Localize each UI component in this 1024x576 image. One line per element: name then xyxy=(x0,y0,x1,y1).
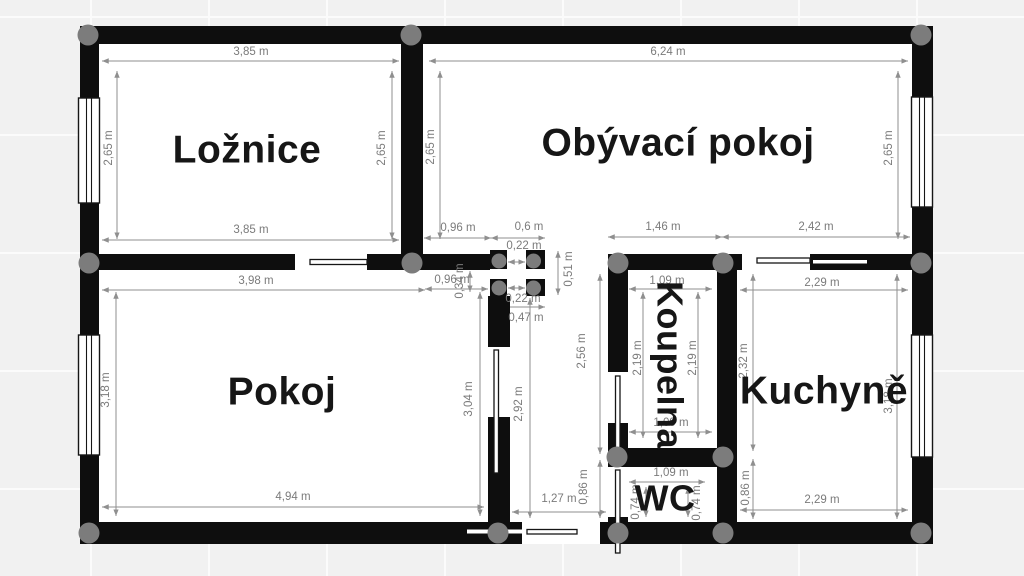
dim-obyvaci-right: 2,65 m xyxy=(883,130,895,165)
dim-hall-292: 2,92 m xyxy=(513,386,525,421)
dim-col-047: 0,47 m xyxy=(508,312,543,324)
dim-hall-256: 2,56 m xyxy=(576,333,588,368)
floor-plan-canvas: 3,85 m 6,24 m 2,65 m 2,65 m 2,65 m 2,65 … xyxy=(0,0,1024,576)
door-leaf-entrance xyxy=(527,530,577,535)
wall-bottom-left xyxy=(80,522,522,544)
room-label-kuchyne: Kuchyně xyxy=(740,370,908,413)
window-loznice xyxy=(79,98,100,203)
room-label-loznice: Ložnice xyxy=(173,129,322,172)
room-label-pokoj: Pokoj xyxy=(228,371,337,414)
dim-kuchyne-bottom: 2,29 m xyxy=(804,494,839,506)
window-kuchyne xyxy=(912,335,933,457)
dim-koupelna-left: 2,19 m xyxy=(632,340,644,375)
wall-kuchyne-left xyxy=(717,254,737,522)
window-pokoj xyxy=(79,335,100,455)
wall-top xyxy=(80,26,932,44)
room-label-koupelna: Koupelna xyxy=(650,281,691,449)
dim-loznice-right: 2,65 m xyxy=(376,130,388,165)
door-leaf-loznice xyxy=(310,260,367,265)
dim-pokoj-right: 3,04 m xyxy=(463,381,475,416)
window-obyvaci xyxy=(912,97,933,207)
dim-mid-242: 2,42 m xyxy=(798,221,833,233)
floor-plan-page: 3,85 m 6,24 m 2,65 m 2,65 m 2,65 m 2,65 … xyxy=(0,0,1024,576)
dim-obyvaci-left: 2,65 m xyxy=(425,129,437,164)
dim-mid-096: 0,96 m xyxy=(440,222,475,234)
dim-hall-127: 1,27 m xyxy=(541,493,576,505)
dim-pokoj-left: 3,18 m xyxy=(100,372,112,407)
dim-col-051: 0,51 m xyxy=(563,251,575,286)
wall-loznice-obyvaci xyxy=(401,26,423,270)
dim-pokoj-034: 0,34 m xyxy=(454,263,466,298)
dim-obyvaci-top: 6,24 m xyxy=(650,46,685,58)
dim-pokoj-bottom: 4,94 m xyxy=(275,491,310,503)
dim-col-022-bottom: 0,22 m xyxy=(505,293,540,305)
room-label-wc: WC xyxy=(635,478,696,519)
dim-loznice-bottom: 3,85 m xyxy=(233,224,268,236)
wall-bottom-right xyxy=(600,522,932,544)
dim-loznice-left: 2,65 m xyxy=(103,130,115,165)
wall-loznice-pokoj xyxy=(99,254,490,270)
door-leaf-pokoj xyxy=(494,350,499,473)
dim-col-022-top: 0,22 m xyxy=(506,240,541,252)
door-leaf-kuchyne xyxy=(757,258,810,263)
dim-hall-086: 0,86 m xyxy=(578,469,590,504)
dim-mid-06: 0,6 m xyxy=(515,221,544,233)
door-pocket-kuchyne xyxy=(813,260,867,264)
room-label-obyvaci-pokoj: Obývací pokoj xyxy=(541,122,814,165)
dim-loznice-top: 3,85 m xyxy=(233,46,268,58)
dim-kuchyne-top: 2,29 m xyxy=(804,277,839,289)
dim-kuchyne-086: 0,86 m xyxy=(740,470,752,505)
door-leaf-koupelna xyxy=(616,376,621,458)
dim-pokoj-top: 3,98 m xyxy=(238,275,273,287)
dim-mid-146: 1,46 m xyxy=(645,221,680,233)
